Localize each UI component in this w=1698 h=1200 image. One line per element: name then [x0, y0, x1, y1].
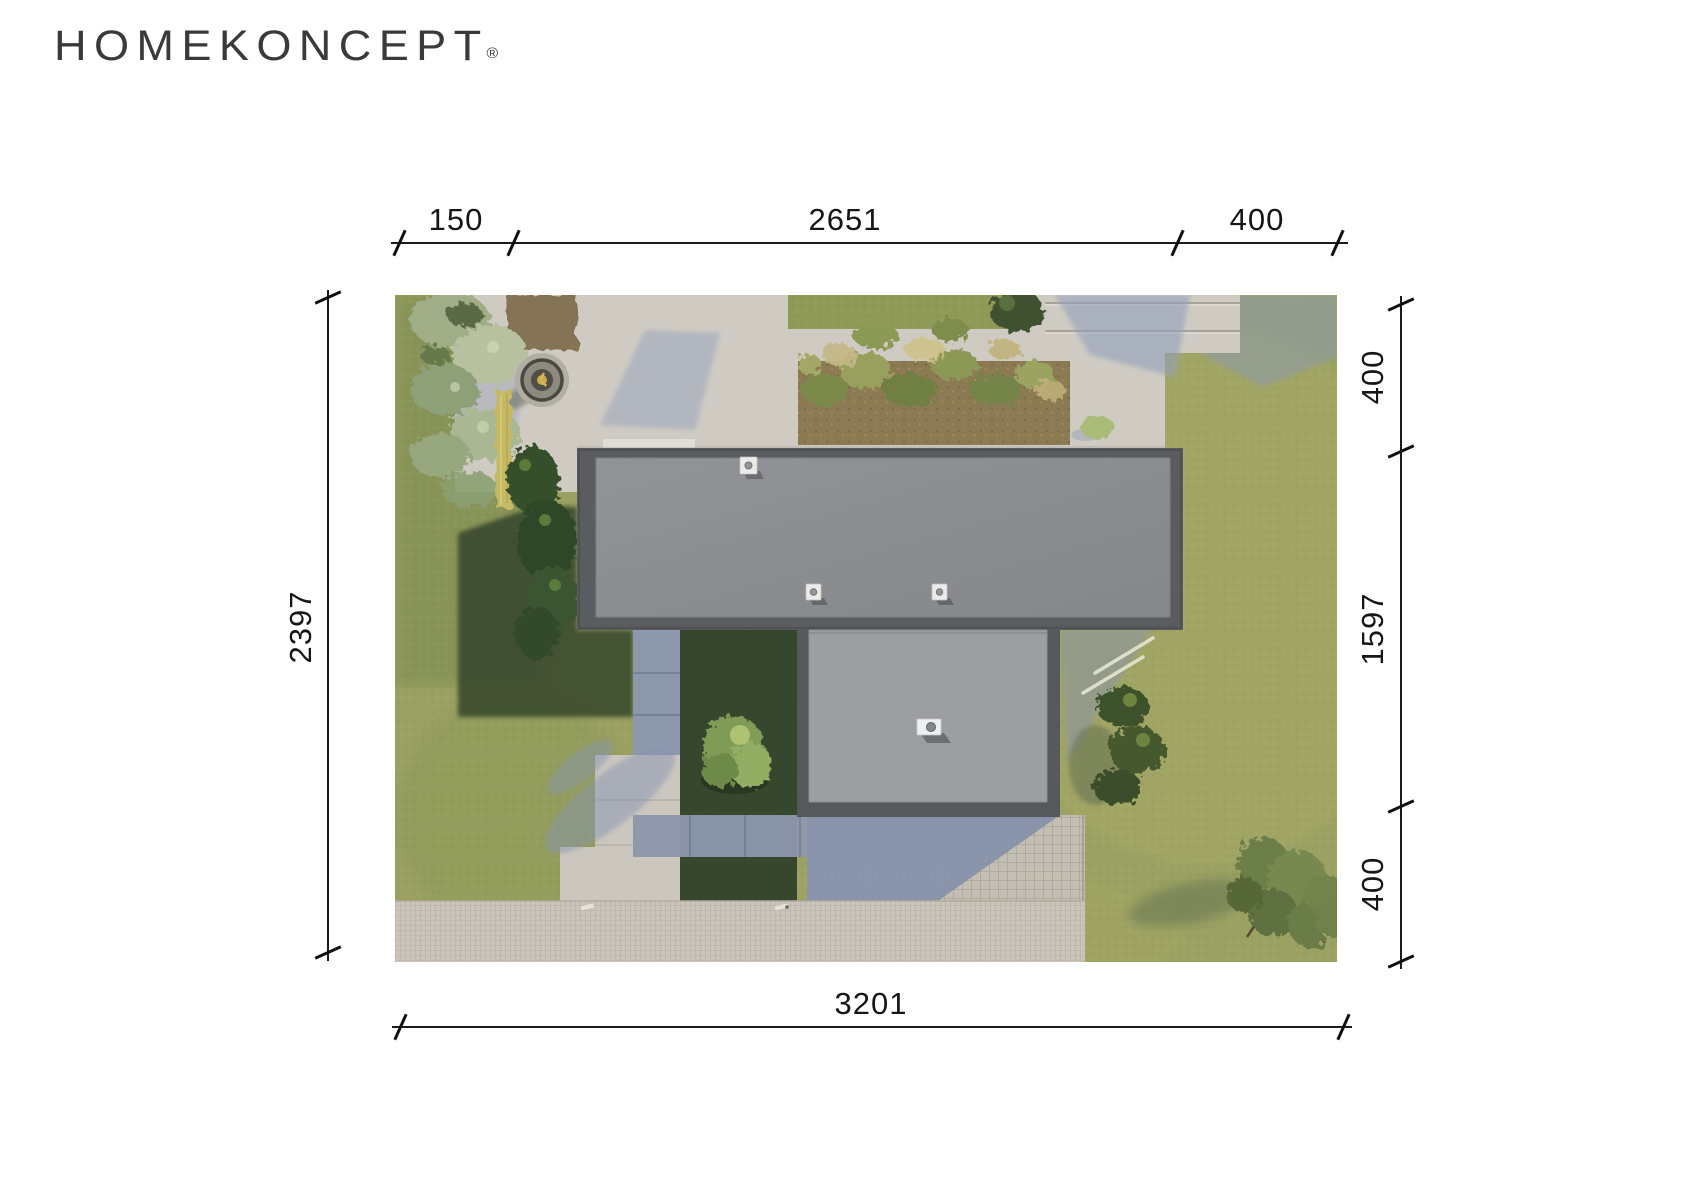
sidewalk — [395, 901, 1085, 962]
dimension-value: 400 — [1355, 350, 1391, 405]
dimension-line — [392, 1026, 1352, 1028]
logo-text: HOMEKONCEPT — [54, 22, 489, 70]
dimension-value: 400 — [1230, 202, 1285, 238]
shaded-garden — [680, 630, 797, 905]
dimension-line — [1400, 296, 1402, 969]
dimension-value: 1597 — [1355, 593, 1391, 666]
site-plan-aerial-image — [395, 295, 1337, 962]
dimension-value: 150 — [429, 202, 484, 238]
site-plan-page: { "logo": { "text": "HOMEKONCEPT", "regi… — [0, 0, 1698, 1200]
slab-band — [633, 815, 807, 857]
garage-roof — [797, 630, 1060, 817]
registered-trademark-icon: ® — [486, 45, 498, 62]
house-main-roof — [577, 448, 1183, 630]
driveway — [807, 815, 1085, 903]
dimension-value: 2651 — [809, 202, 882, 238]
grass-strip-top — [788, 295, 1044, 332]
dimension-value: 2397 — [283, 591, 319, 664]
terrace-bench — [603, 439, 695, 448]
dimension-value: 400 — [1355, 857, 1391, 912]
homekoncept-logo: HOMEKONCEPT® — [54, 22, 500, 71]
dimension-value: 3201 — [835, 986, 908, 1022]
dimension-line — [391, 242, 1348, 244]
dimension-line — [327, 290, 329, 961]
